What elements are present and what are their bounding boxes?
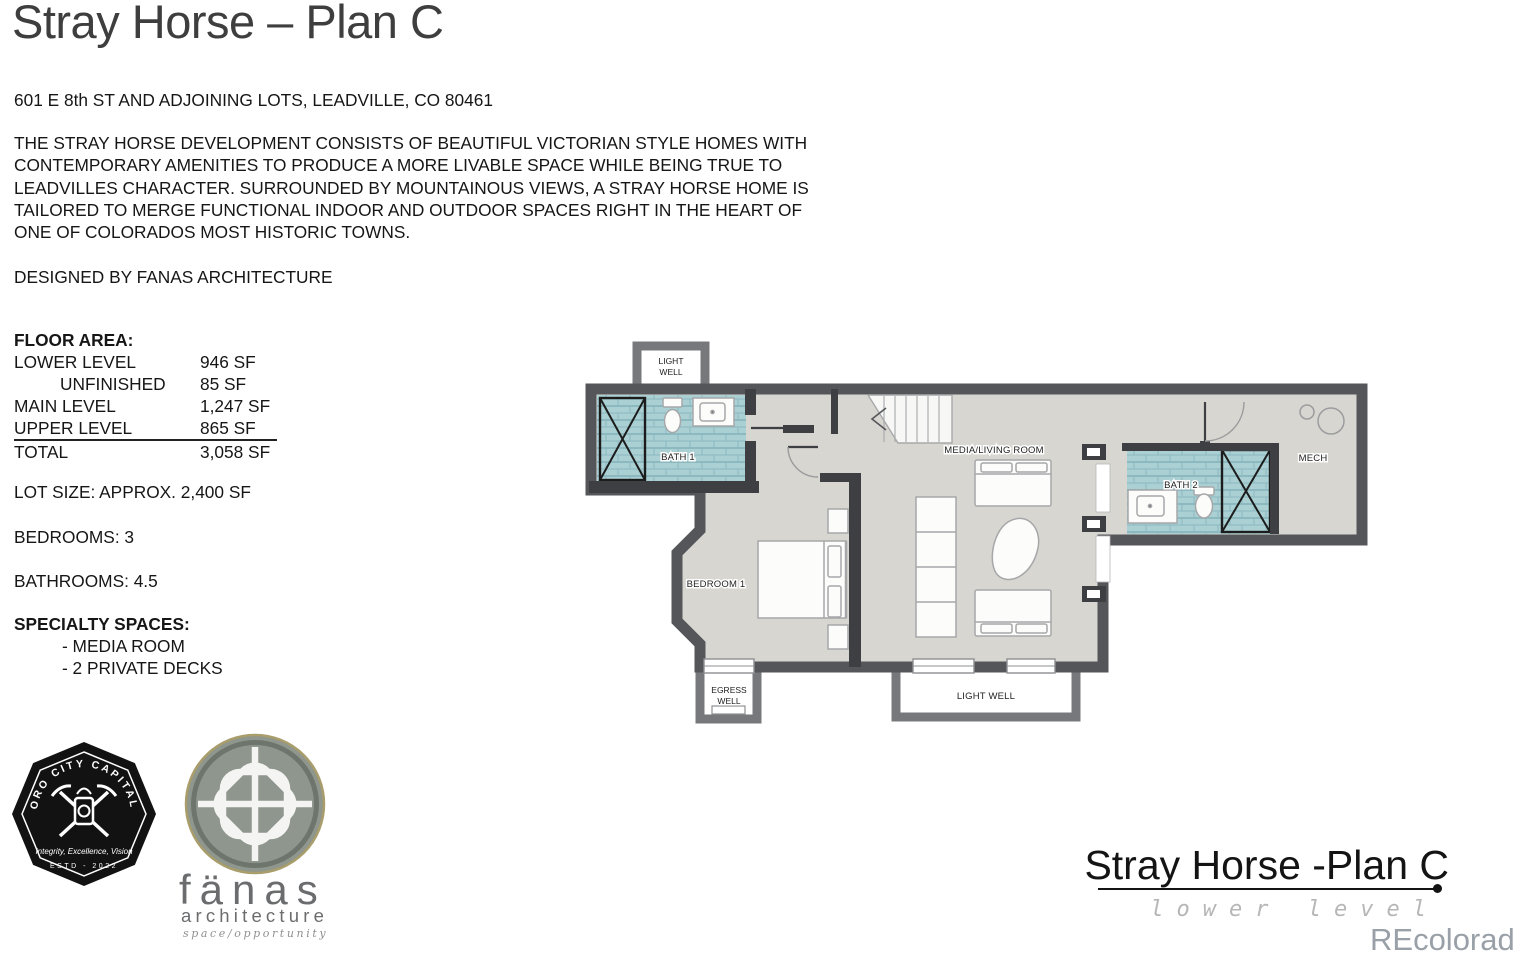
badge-tagline: Integrity, Excellence, Vision [35,847,133,856]
oro-city-capital-logo: ORO CITY CAPITAL Integrity, Excellence, … [8,728,160,896]
light-well-top-label: LIGHT [658,356,683,366]
light-well-bottom-label: LIGHT WELL [957,691,1015,702]
footer-level-label: lower level [1150,897,1439,922]
mech-label: MECH [1299,453,1328,464]
bath2-label: BATH 2 [1164,480,1198,491]
egress-well-label: EGRESS [711,685,747,695]
recolorado-watermark: REcolorado [1370,922,1515,958]
footer-rule-dot [1433,884,1442,893]
bath1-label: BATH 1 [661,452,695,463]
badge-established: ESTD - 2022 [50,863,118,870]
nightstand [828,509,848,533]
fanas-tagline: space/opportunity [183,927,328,940]
media-living-label: MEDIA/LIVING ROOM [944,445,1043,456]
bath2-shower [1222,450,1270,532]
footer-plan-title: Stray Horse -Plan C [1084,842,1449,889]
nightstand [828,625,848,649]
light-well-top-label: WELL [659,367,682,377]
bath1-toilet [663,398,682,407]
footer-rule [1098,888,1438,890]
egress-well-label: WELL [717,696,740,706]
fanas-subtitle: architecture [181,905,328,927]
fanas-knot-logo [183,733,333,879]
bedroom1-label: BEDROOM 1 [687,579,746,590]
